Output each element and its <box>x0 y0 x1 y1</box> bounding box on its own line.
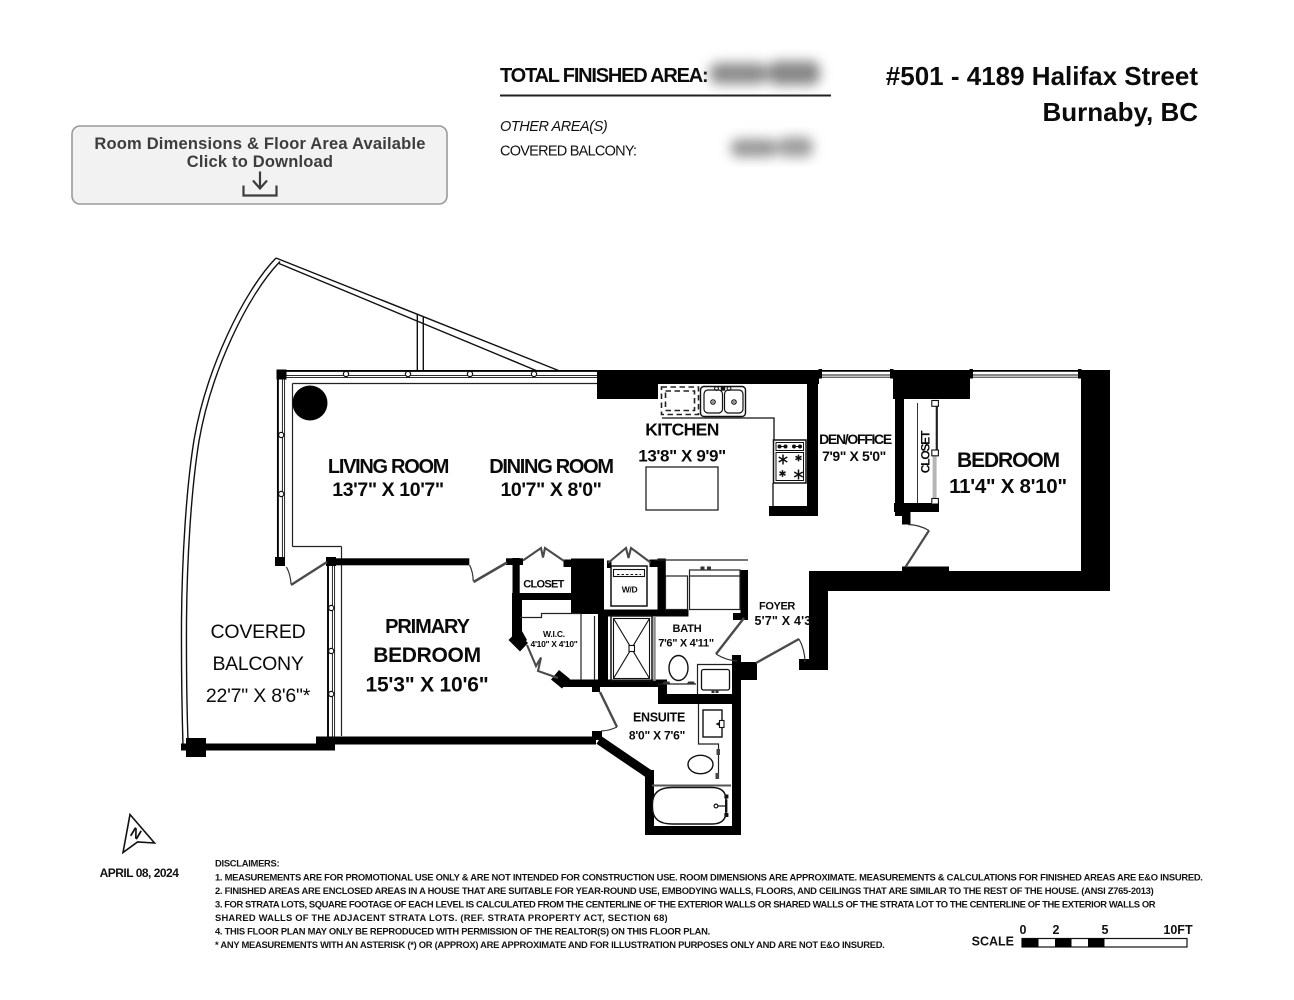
svg-text:10'7" X 8'0": 10'7" X 8'0" <box>500 479 601 501</box>
svg-text:PRIMARY: PRIMARY <box>385 616 471 638</box>
svg-text:3. FOR STRATA LOTS, SQUARE FOO: 3. FOR STRATA LOTS, SQUARE FOOTAGE OF EA… <box>215 899 1156 910</box>
svg-text:13'8" X 9'9": 13'8" X 9'9" <box>638 447 725 466</box>
svg-text:W/D: W/D <box>622 585 638 595</box>
svg-text:Room Dimensions & Floor Area A: Room Dimensions & Floor Area Available <box>94 135 425 153</box>
svg-text:TOTAL FINISHED AREA:: TOTAL FINISHED AREA: <box>500 65 708 87</box>
svg-text:DEN/OFFICE: DEN/OFFICE <box>819 431 892 447</box>
svg-text:* ANY MEASUREMENTS WITH AN AST: * ANY MEASUREMENTS WITH AN ASTERISK (*) … <box>215 939 885 950</box>
svg-text:4'10" X 4'10": 4'10" X 4'10" <box>531 639 578 649</box>
svg-text:ENSUITE: ENSUITE <box>633 711 685 725</box>
svg-text:OTHER AREA(S): OTHER AREA(S) <box>500 119 607 135</box>
svg-text:COVERED BALCONY:: COVERED BALCONY: <box>500 144 636 160</box>
svg-text:15'3" X 10'6": 15'3" X 10'6" <box>365 674 488 697</box>
svg-text:DISCLAIMERS:: DISCLAIMERS: <box>215 858 280 869</box>
svg-text:10FT: 10FT <box>1163 923 1193 937</box>
svg-text:8'0" X 7'6": 8'0" X 7'6" <box>629 729 685 743</box>
svg-text:SCALE: SCALE <box>972 935 1014 949</box>
svg-text:5: 5 <box>1102 923 1109 937</box>
svg-text:11'4" X 8'10": 11'4" X 8'10" <box>949 475 1067 498</box>
svg-text:2. FINISHED AREAS ARE ENCLOSED: 2. FINISHED AREAS ARE ENCLOSED AREAS IN … <box>215 885 1154 896</box>
svg-text:DINING ROOM: DINING ROOM <box>489 456 613 478</box>
svg-text:CLOSET: CLOSET <box>523 579 564 591</box>
svg-text:5'7" X 4'3": 5'7" X 4'3" <box>754 614 817 628</box>
svg-text:KITCHEN: KITCHEN <box>645 420 719 440</box>
svg-text:4. THIS FLOOR PLAN MAY ONLY BE: 4. THIS FLOOR PLAN MAY ONLY BE REPRODUCE… <box>215 926 710 937</box>
svg-text:Click to Download: Click to Download <box>187 153 333 171</box>
svg-text:Burnaby, BC: Burnaby, BC <box>1042 97 1198 127</box>
svg-text:7'6" X 4'11": 7'6" X 4'11" <box>658 638 714 650</box>
svg-text:7'9" X 5'0": 7'9" X 5'0" <box>822 448 886 464</box>
svg-text:APRIL 08, 2024: APRIL 08, 2024 <box>100 866 180 880</box>
svg-text:FOYER: FOYER <box>759 601 795 613</box>
svg-text:BALCONY: BALCONY <box>212 653 303 675</box>
svg-text:SHARED WALLS OF THE ADJACENT S: SHARED WALLS OF THE ADJACENT STRATA LOTS… <box>215 912 668 923</box>
svg-text:LIVING ROOM: LIVING ROOM <box>328 456 449 478</box>
svg-text:W.I.C.: W.I.C. <box>543 629 565 639</box>
svg-text:1. MEASUREMENTS ARE FOR PROMOT: 1. MEASUREMENTS ARE FOR PROMOTIONAL USE … <box>215 872 1203 883</box>
svg-text:BEDROOM: BEDROOM <box>373 644 481 667</box>
svg-text:#501 - 4189 Halifax Street: #501 - 4189 Halifax Street <box>886 61 1199 91</box>
svg-text:COVERED: COVERED <box>210 621 305 643</box>
svg-text:BEDROOM: BEDROOM <box>957 449 1060 472</box>
svg-text:0: 0 <box>1020 923 1027 937</box>
svg-text:BATH: BATH <box>673 623 702 635</box>
svg-text:2: 2 <box>1053 923 1060 937</box>
svg-text:13'7" X 10'7": 13'7" X 10'7" <box>332 479 443 501</box>
svg-text:CLOSET: CLOSET <box>919 430 933 473</box>
svg-text:22'7" X 8'6"*: 22'7" X 8'6"* <box>206 685 311 707</box>
